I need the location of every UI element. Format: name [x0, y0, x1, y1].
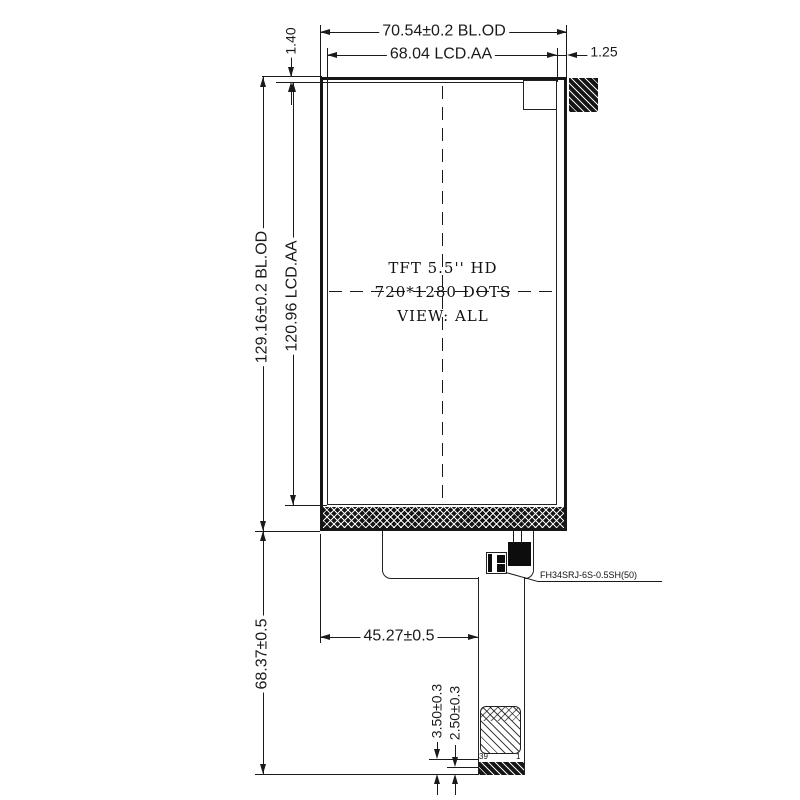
gold-fingers	[479, 762, 524, 775]
dim-label-side-inner: 120.96 LCD.AA	[285, 237, 302, 354]
ext-line	[429, 759, 478, 760]
lcd-outline-drawing: TFT 5.5'' HD 720*1280 DOTS VIEW: ALL FH3…	[0, 0, 800, 800]
dim-arrow	[327, 52, 337, 58]
corner-notch	[523, 80, 557, 110]
connector-pad-top	[497, 555, 505, 563]
dim-arrow	[434, 774, 440, 784]
ext-line	[320, 534, 321, 643]
dim-label-contact-a: 3.50±0.3	[430, 681, 445, 741]
dim-arrow	[320, 29, 330, 35]
stiffener	[480, 706, 521, 754]
dim-arrow	[290, 82, 296, 92]
backlight-hatched-strip	[323, 507, 564, 528]
ext-line	[276, 82, 327, 83]
corner-hatch-block	[569, 78, 598, 112]
dim-label-right-offset: 1.25	[587, 45, 620, 60]
dim-arrow	[434, 749, 440, 759]
dim-line-contact-b	[455, 784, 456, 795]
dim-label-tail-offset: 45.27±0.5	[360, 629, 437, 646]
connector-bar	[488, 554, 492, 572]
dim-label-side-outer: 129.16±0.2 BL.OD	[255, 228, 272, 366]
ext-line	[285, 505, 327, 506]
panel-spec-line1: TFT 5.5'' HD	[388, 259, 497, 277]
ext-line	[447, 767, 478, 768]
dim-arrow	[260, 77, 266, 87]
connector-symbol	[486, 552, 507, 574]
dim-label-left-offset: 1.40	[284, 24, 299, 57]
dim-label-tail-length: 68.37±0.5	[255, 615, 272, 692]
dim-line-right-offset	[557, 55, 567, 56]
dim-arrow	[452, 774, 458, 784]
dim-arrow	[260, 764, 266, 774]
panel-spec-line3: VIEW: ALL	[397, 307, 488, 325]
connector-label: FH34SRJ-6S-0.5SH(50)	[540, 570, 637, 580]
dim-line-contact-a	[437, 784, 438, 795]
dim-arrow	[547, 52, 557, 58]
stiffener-hatch-top	[481, 707, 520, 721]
chip-trace-left	[513, 531, 514, 542]
dim-label-contact-b: 2.50±0.3	[448, 683, 463, 743]
panel-spec-line2: 720*1280 DOTS	[375, 283, 512, 301]
dim-arrow	[567, 52, 577, 58]
dim-arrow	[260, 531, 266, 541]
connector-pad-bottom	[497, 564, 505, 572]
ext-line	[262, 76, 322, 77]
dim-label-top-inner: 68.04 LCD.AA	[387, 47, 495, 64]
pin-number-last: 1	[516, 753, 520, 761]
dim-arrow	[557, 29, 567, 35]
dim-arrow	[320, 634, 330, 640]
driver-chip	[508, 542, 531, 566]
pin-number-first: 39	[479, 753, 488, 761]
dim-label-top-outer: 70.54±0.2 BL.OD	[379, 24, 509, 41]
dim-arrow	[290, 495, 296, 505]
ext-line-bottom	[255, 774, 479, 775]
dim-arrow	[468, 634, 478, 640]
connector-label-underline	[538, 581, 662, 582]
ext-line	[557, 48, 558, 82]
dim-line-left-offset	[291, 92, 292, 105]
dim-arrow	[260, 521, 266, 531]
chip-trace-right	[521, 531, 522, 542]
